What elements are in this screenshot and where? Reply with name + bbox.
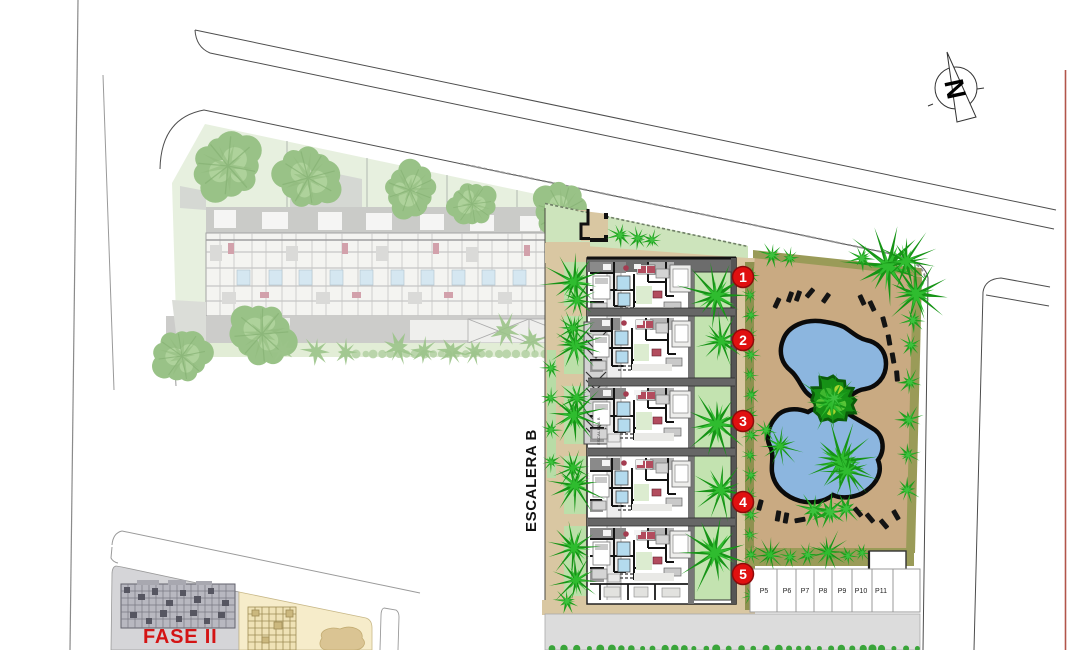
svg-text:2: 2 [739, 332, 747, 348]
svg-text:3: 3 [739, 413, 747, 429]
svg-text:P11: P11 [875, 588, 887, 595]
svg-text:P10: P10 [855, 588, 868, 595]
svg-text:4: 4 [739, 494, 747, 510]
svg-text:5: 5 [739, 566, 747, 582]
svg-text:P9: P9 [838, 588, 847, 595]
svg-text:P8: P8 [819, 588, 828, 595]
svg-text:P6: P6 [783, 588, 792, 595]
svg-text:1: 1 [739, 269, 747, 285]
svg-text:ESCALERA B: ESCALERA B [523, 429, 540, 532]
svg-text:ESCALERA B: ESCALERA B [596, 417, 601, 445]
svg-text:P7: P7 [801, 588, 810, 595]
svg-text:P5: P5 [760, 588, 769, 595]
svg-text:FASE II: FASE II [143, 626, 218, 648]
